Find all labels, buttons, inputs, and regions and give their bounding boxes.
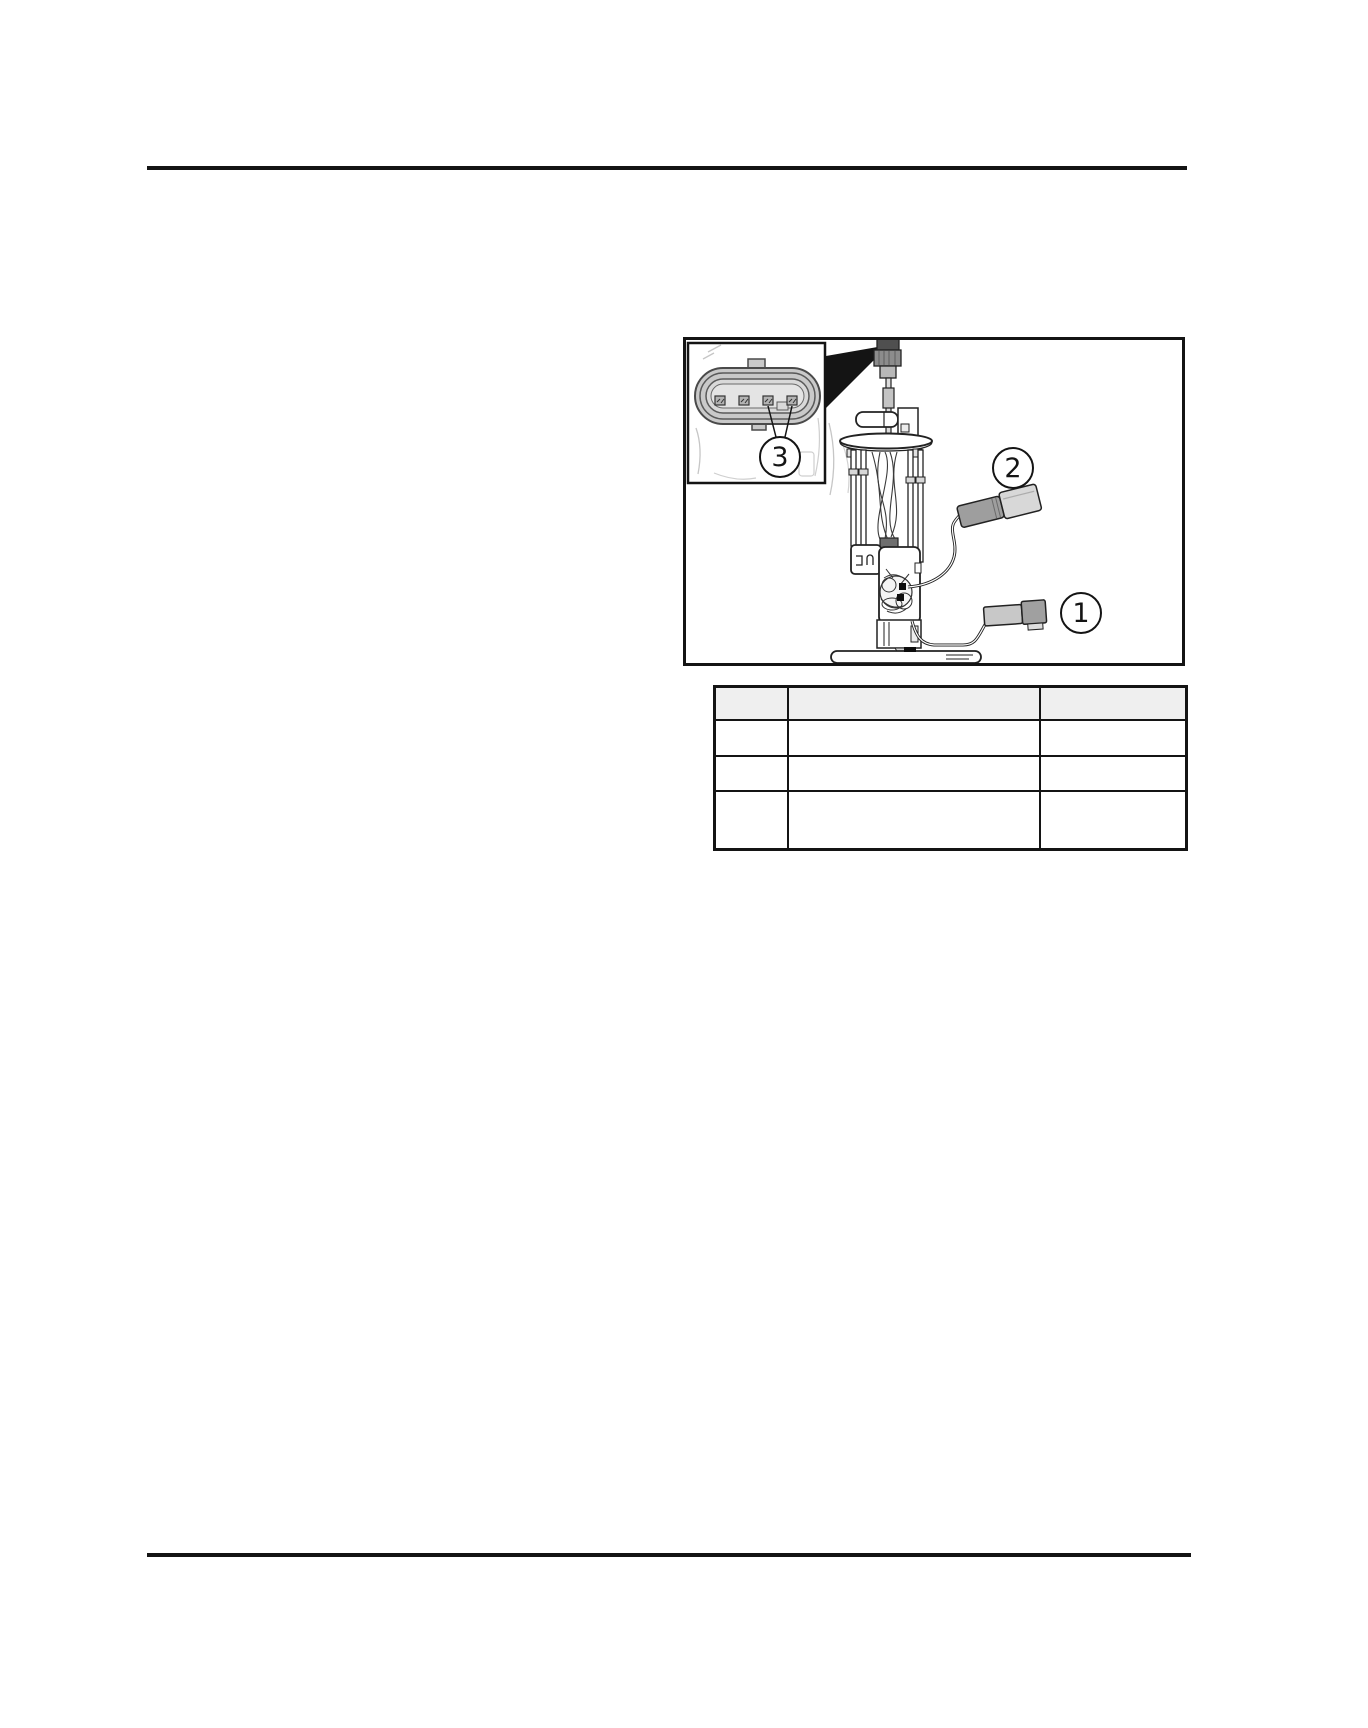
callout-1-label: 1 xyxy=(1072,598,1089,629)
wiring-strands xyxy=(872,452,897,540)
harness-wire-1 xyxy=(912,617,992,645)
callout-2: 2 xyxy=(993,448,1033,488)
connector-pin-3 xyxy=(763,396,773,405)
sketch-line xyxy=(829,423,834,495)
fuel-pipe xyxy=(856,412,898,427)
parts-table xyxy=(713,685,1188,851)
table-cell xyxy=(1040,756,1187,791)
table-row xyxy=(715,720,1187,756)
reservoir-notch xyxy=(915,563,921,573)
table-cell xyxy=(788,720,1040,756)
table-cell xyxy=(715,756,788,791)
connector-pin-1 xyxy=(715,396,725,405)
table-cell xyxy=(715,791,788,850)
connector-face xyxy=(695,359,820,430)
table-cell xyxy=(1040,720,1187,756)
callout-3-label: 3 xyxy=(771,442,788,473)
document-page: 3 xyxy=(0,0,1368,1728)
harness-connector-2 xyxy=(956,484,1042,530)
table-header-cell-1 xyxy=(715,687,788,721)
table-cell xyxy=(788,756,1040,791)
header-rule xyxy=(147,166,1187,170)
callout-1: 1 xyxy=(1061,593,1101,633)
callout-3: 3 xyxy=(760,437,800,477)
connector-pin-4 xyxy=(787,396,797,405)
connector-pin-2 xyxy=(739,396,749,405)
side-module xyxy=(851,545,881,574)
connector-inset: 3 xyxy=(688,343,825,483)
footer-rule xyxy=(147,1553,1191,1557)
figure-fuel-pump-module: 3 xyxy=(683,337,1185,666)
table-cell xyxy=(715,720,788,756)
harness-connector-1 xyxy=(983,600,1047,633)
table-header-cell-3 xyxy=(1040,687,1187,721)
base-plate xyxy=(831,647,981,663)
table-cell xyxy=(1040,791,1187,850)
bracket-detail xyxy=(901,424,909,432)
callout-2-label: 2 xyxy=(1004,453,1021,484)
table-row xyxy=(715,791,1187,850)
table-header-row xyxy=(715,687,1187,721)
pump-module xyxy=(831,340,992,663)
table-header-cell-2 xyxy=(788,687,1040,721)
table-row xyxy=(715,756,1187,791)
fuel-pump-module-diagram: 3 xyxy=(686,340,1182,663)
table-cell xyxy=(788,791,1040,850)
